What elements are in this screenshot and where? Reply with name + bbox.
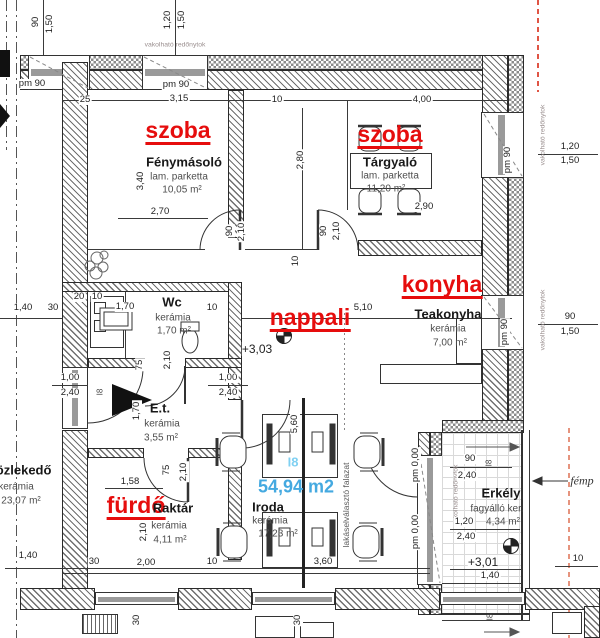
label-dim-90-door-l: 90 <box>225 225 235 238</box>
label-dim-400: 4,00 <box>412 95 433 105</box>
label-sub-area-1: 10,05 m² <box>162 185 201 196</box>
label-dim-210-door-r: 2,10 <box>332 221 342 242</box>
label-blue-total-area: 54,94 m2 <box>258 477 334 498</box>
label-sub-area-2: 11,20 m² <box>367 184 406 195</box>
label-dim-158: 1,58 <box>120 477 141 487</box>
label-title-wc: Wc <box>162 295 182 310</box>
label-red-szoba-1: szoba <box>145 119 210 145</box>
label-title-teakonyha: Teakonyha <box>415 307 482 322</box>
label-dim-90-door-r: 90 <box>319 225 329 238</box>
labels-layer: 901,501,201,50vakolható redőnytokpm 90pm… <box>0 0 600 638</box>
label-dim-510: 5,10 <box>353 303 374 313</box>
label-i8-erkely-bot: I8 <box>486 614 495 621</box>
label-dim-150-r: 1,50 <box>560 327 581 337</box>
label-dim-10-br: 10 <box>572 554 585 564</box>
label-dim-150-tl2: 1,50 <box>177 10 187 31</box>
label-pm90-top-b: pm 90 <box>162 80 190 90</box>
label-pm000-b: pm 0,00 <box>411 514 421 550</box>
label-dim-170-v: 1,70 <box>132 401 142 422</box>
label-sub-area-rak: 4,11 m² <box>153 535 186 546</box>
label-pm90-right-mid: pm 90 <box>500 318 510 346</box>
label-dim-210-rak: 2,10 <box>139 522 149 543</box>
label-title-targyalo: Tárgyaló <box>363 155 417 170</box>
label-dim-30-b: 30 <box>88 557 101 567</box>
label-dim-240-pr: 2,40 <box>218 388 239 398</box>
label-sub-area-wc: 1,70 m² <box>157 326 191 337</box>
label-dim-240-e0: 2,40 <box>457 471 478 481</box>
label-red-szoba-2: szoba <box>357 123 422 149</box>
label-dim-10-b: 10 <box>206 557 219 567</box>
label-dim-150-rt: 1,50 <box>560 156 581 166</box>
label-redony-right-top: vakolható redőnytok <box>540 105 547 166</box>
label-dim-210-wc: 2,10 <box>163 350 173 371</box>
label-dim-210-door-l: 2,10 <box>237 222 247 243</box>
label-dim-120-rt: 1,20 <box>560 142 581 152</box>
label-title-et: E.t. <box>150 401 170 416</box>
label-pm000-a: pm 0,00 <box>411 447 421 483</box>
label-dim-30-v2: 30 <box>293 614 303 627</box>
label-dim-100-pr: 1,00 <box>218 373 239 383</box>
label-lvl-301: +3,01 <box>468 555 498 569</box>
label-sub-area-erk: 4,34 m² <box>486 517 520 528</box>
label-sub-area-ir: 17,23 m² <box>258 529 297 540</box>
label-dim-560: 5,60 <box>290 414 300 435</box>
label-dim-100-pl: 1,00 <box>60 373 81 383</box>
label-dim-10-wc-r: 10 <box>206 303 219 313</box>
label-title-erkely: Erkély <box>481 486 520 501</box>
label-dim-315: 3,15 <box>169 94 190 104</box>
floor-plan-canvas: 901,501,201,50vakolható redőnytokpm 90pm… <box>0 0 600 638</box>
label-dim-360-b: 3,60 <box>313 557 334 567</box>
label-dim-25: 25 <box>79 95 92 105</box>
label-dim-30-v1: 30 <box>132 614 142 627</box>
label-blue-unit-id: I8 <box>288 455 299 470</box>
label-sub-lam-1: lam. parketta <box>150 172 208 183</box>
label-redony-right-mid: vakolható redőnytok <box>540 290 547 351</box>
label-dim-140-bl: 1,40 <box>18 551 39 561</box>
label-dim-10-mid: 10 <box>291 255 301 268</box>
label-title-fenymasolo: Fénymásoló <box>146 155 222 170</box>
label-red-konyha: konyha <box>402 273 483 299</box>
label-title-raktar: Raktár <box>153 501 193 516</box>
label-dim-90-tl: 90 <box>31 16 41 29</box>
label-red-nappali: nappali <box>270 306 351 332</box>
label-sub-ker-rak: kerámia <box>151 521 187 532</box>
label-dim-120-tl2: 1,20 <box>163 10 173 31</box>
label-sub-area-et: 3,55 m² <box>144 433 178 444</box>
label-dim-340: 3,40 <box>136 171 146 192</box>
label-sub-fagyallo: fagyálló ker. <box>470 504 523 515</box>
label-sub-ker-et: kerámia <box>144 419 180 430</box>
label-pm90-right-top: pm 90 <box>503 146 513 174</box>
label-dim-140-l: 1,40 <box>13 303 34 313</box>
label-sub-ker-koz: kerámia <box>0 482 34 493</box>
label-dim-270: 2,70 <box>150 207 171 217</box>
label-dim-90-e: 90 <box>464 454 477 464</box>
label-dim-20: 20 <box>73 292 86 302</box>
label-sub-ker-ir: kerámia <box>252 516 288 527</box>
label-i8-entry: I8 <box>96 389 105 396</box>
label-title-iroda: Iroda <box>252 500 284 515</box>
label-dim-75-wc: 75 <box>135 359 145 372</box>
label-dim-10-wc-l: 10 <box>91 292 104 302</box>
label-dim-280: 2,80 <box>296 150 306 171</box>
label-pm90-top-a: pm 90 <box>18 79 46 89</box>
label-sub-ker-wc: kerámia <box>155 313 191 324</box>
label-sub-lam-2: lam. parketta <box>361 171 419 182</box>
label-femp-note: fémp <box>570 474 593 489</box>
label-dim-170: 1,70 <box>115 302 136 312</box>
label-dim-150-tl: 1,50 <box>45 14 55 35</box>
label-sub-area-koz: 23,07 m² <box>1 496 40 507</box>
label-dim-10-top: 10 <box>271 95 284 105</box>
label-dim-75-f: 75 <box>162 464 172 477</box>
label-dim-140-e: 1,40 <box>480 571 501 581</box>
label-dim-90-r: 90 <box>564 312 577 322</box>
label-title-kozlekedo: közlekedő <box>0 463 51 478</box>
label-wall-note: lakáselválasztó falazat <box>341 462 351 547</box>
label-dim-290: 2,90 <box>414 202 435 212</box>
label-i8-erkely-top: I8 <box>485 460 494 467</box>
label-sub-ker-teak: kerámia <box>430 324 466 335</box>
label-dim-240-e1: 2,40 <box>456 532 477 542</box>
label-sub-area-teak: 7,00 m² <box>433 338 467 349</box>
label-dim-210-f: 2,10 <box>179 462 189 483</box>
label-lvl-303: +3,03 <box>242 342 272 356</box>
label-redony-top: vakolható redőnytok <box>145 42 206 49</box>
label-dim-240-pl: 2,40 <box>60 388 81 398</box>
label-dim-200-b: 2,00 <box>136 558 157 568</box>
label-dim-120-e: 1,20 <box>454 517 475 527</box>
label-dim-30-l: 30 <box>47 303 60 313</box>
